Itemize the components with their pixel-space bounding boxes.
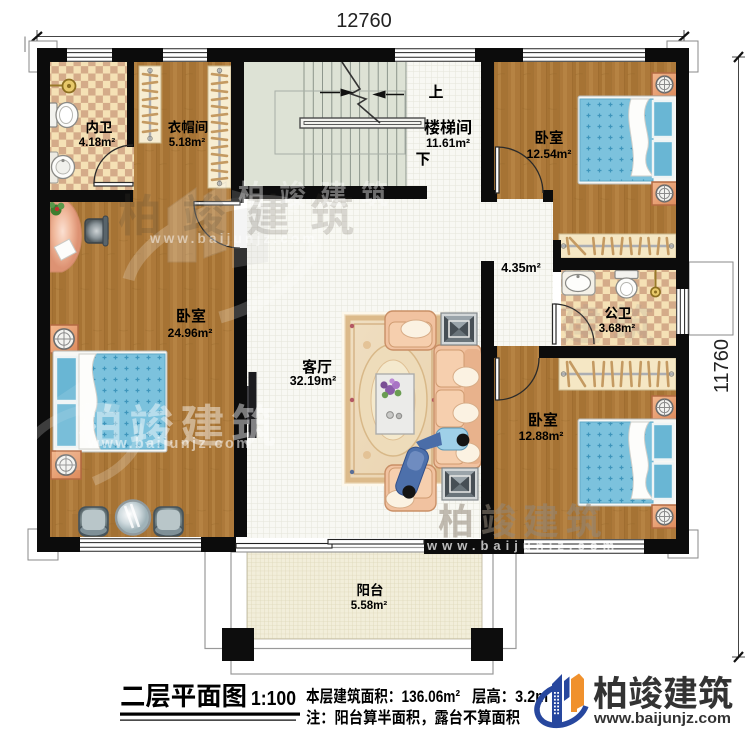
svg-text:楼梯间: 楼梯间: [424, 114, 472, 138]
svg-text:卧室: 卧室: [535, 127, 564, 148]
svg-text:3.68m²: 3.68m²: [599, 323, 636, 335]
svg-text:4.35m²: 4.35m²: [501, 261, 541, 275]
svg-text:4.18m²: 4.18m²: [79, 137, 116, 149]
svg-text:阳台: 阳台: [357, 579, 384, 599]
svg-text:二层平面图: 二层平面图: [120, 676, 247, 713]
svg-text:柏竣建筑: 柏竣建筑: [238, 173, 402, 212]
svg-text:11.61m²: 11.61m²: [426, 136, 470, 150]
svg-text:卧室: 卧室: [528, 409, 558, 430]
svg-text:32.19m²: 32.19m²: [290, 374, 337, 388]
svg-text:柏竣建筑: 柏竣建筑: [593, 666, 733, 717]
svg-text:注：阳台算半面积，露台不算面积: 注：阳台算半面积，露台不算面积: [306, 704, 520, 728]
svg-text:12760: 12760: [336, 10, 392, 32]
svg-text:衣帽间: 衣帽间: [168, 116, 209, 136]
svg-text:www.baijunjz.com: www.baijunjz.com: [593, 711, 731, 727]
svg-text:下: 下: [415, 148, 430, 169]
svg-text:公卫: 公卫: [605, 302, 632, 322]
svg-text:12.54m²: 12.54m²: [527, 147, 572, 161]
svg-text:5.58m²: 5.58m²: [351, 600, 388, 612]
svg-text:www.baijunjz.com: www.baijunjz.com: [426, 538, 619, 553]
svg-text:12.88m²: 12.88m²: [519, 429, 564, 443]
svg-text:5.18m²: 5.18m²: [169, 137, 206, 149]
svg-text:内卫: 内卫: [86, 116, 113, 136]
svg-text:www.baijunjz.com: www.baijunjz.com: [87, 436, 252, 452]
svg-text:11760: 11760: [711, 339, 733, 393]
svg-text:1:100: 1:100: [251, 688, 296, 710]
svg-text:上: 上: [428, 81, 443, 102]
svg-text:24.96m²: 24.96m²: [168, 326, 213, 340]
svg-text:卧室: 卧室: [176, 305, 206, 326]
svg-text:www.baijunjz.com: www.baijunjz.com: [149, 231, 318, 246]
